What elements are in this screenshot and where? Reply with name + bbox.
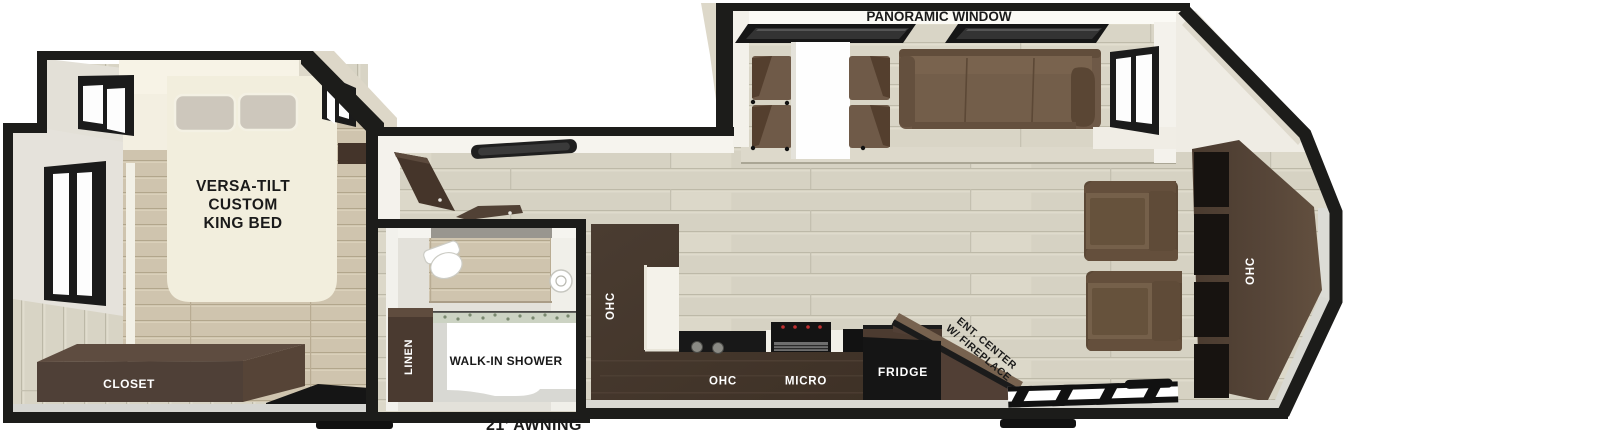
svg-text:LINEN: LINEN [403, 339, 415, 375]
svg-text:PANORAMIC WINDOW: PANORAMIC WINDOW [866, 9, 1011, 24]
svg-text:WALK-IN SHOWER: WALK-IN SHOWER [450, 354, 563, 368]
svg-text:OHC: OHC [605, 292, 617, 320]
svg-text:OHC: OHC [1245, 257, 1257, 285]
svg-text:CLOSET: CLOSET [103, 377, 155, 391]
svg-text:FRIDGE: FRIDGE [878, 365, 928, 379]
svg-text:MICRO: MICRO [785, 376, 827, 388]
svg-text:VERSA-TILT: VERSA-TILT [196, 178, 290, 195]
svg-text:KING BED: KING BED [204, 215, 283, 232]
svg-text:21’ AWNING: 21’ AWNING [486, 417, 582, 434]
svg-text:OHC: OHC [709, 376, 737, 388]
svg-text:CUSTOM: CUSTOM [208, 197, 277, 214]
